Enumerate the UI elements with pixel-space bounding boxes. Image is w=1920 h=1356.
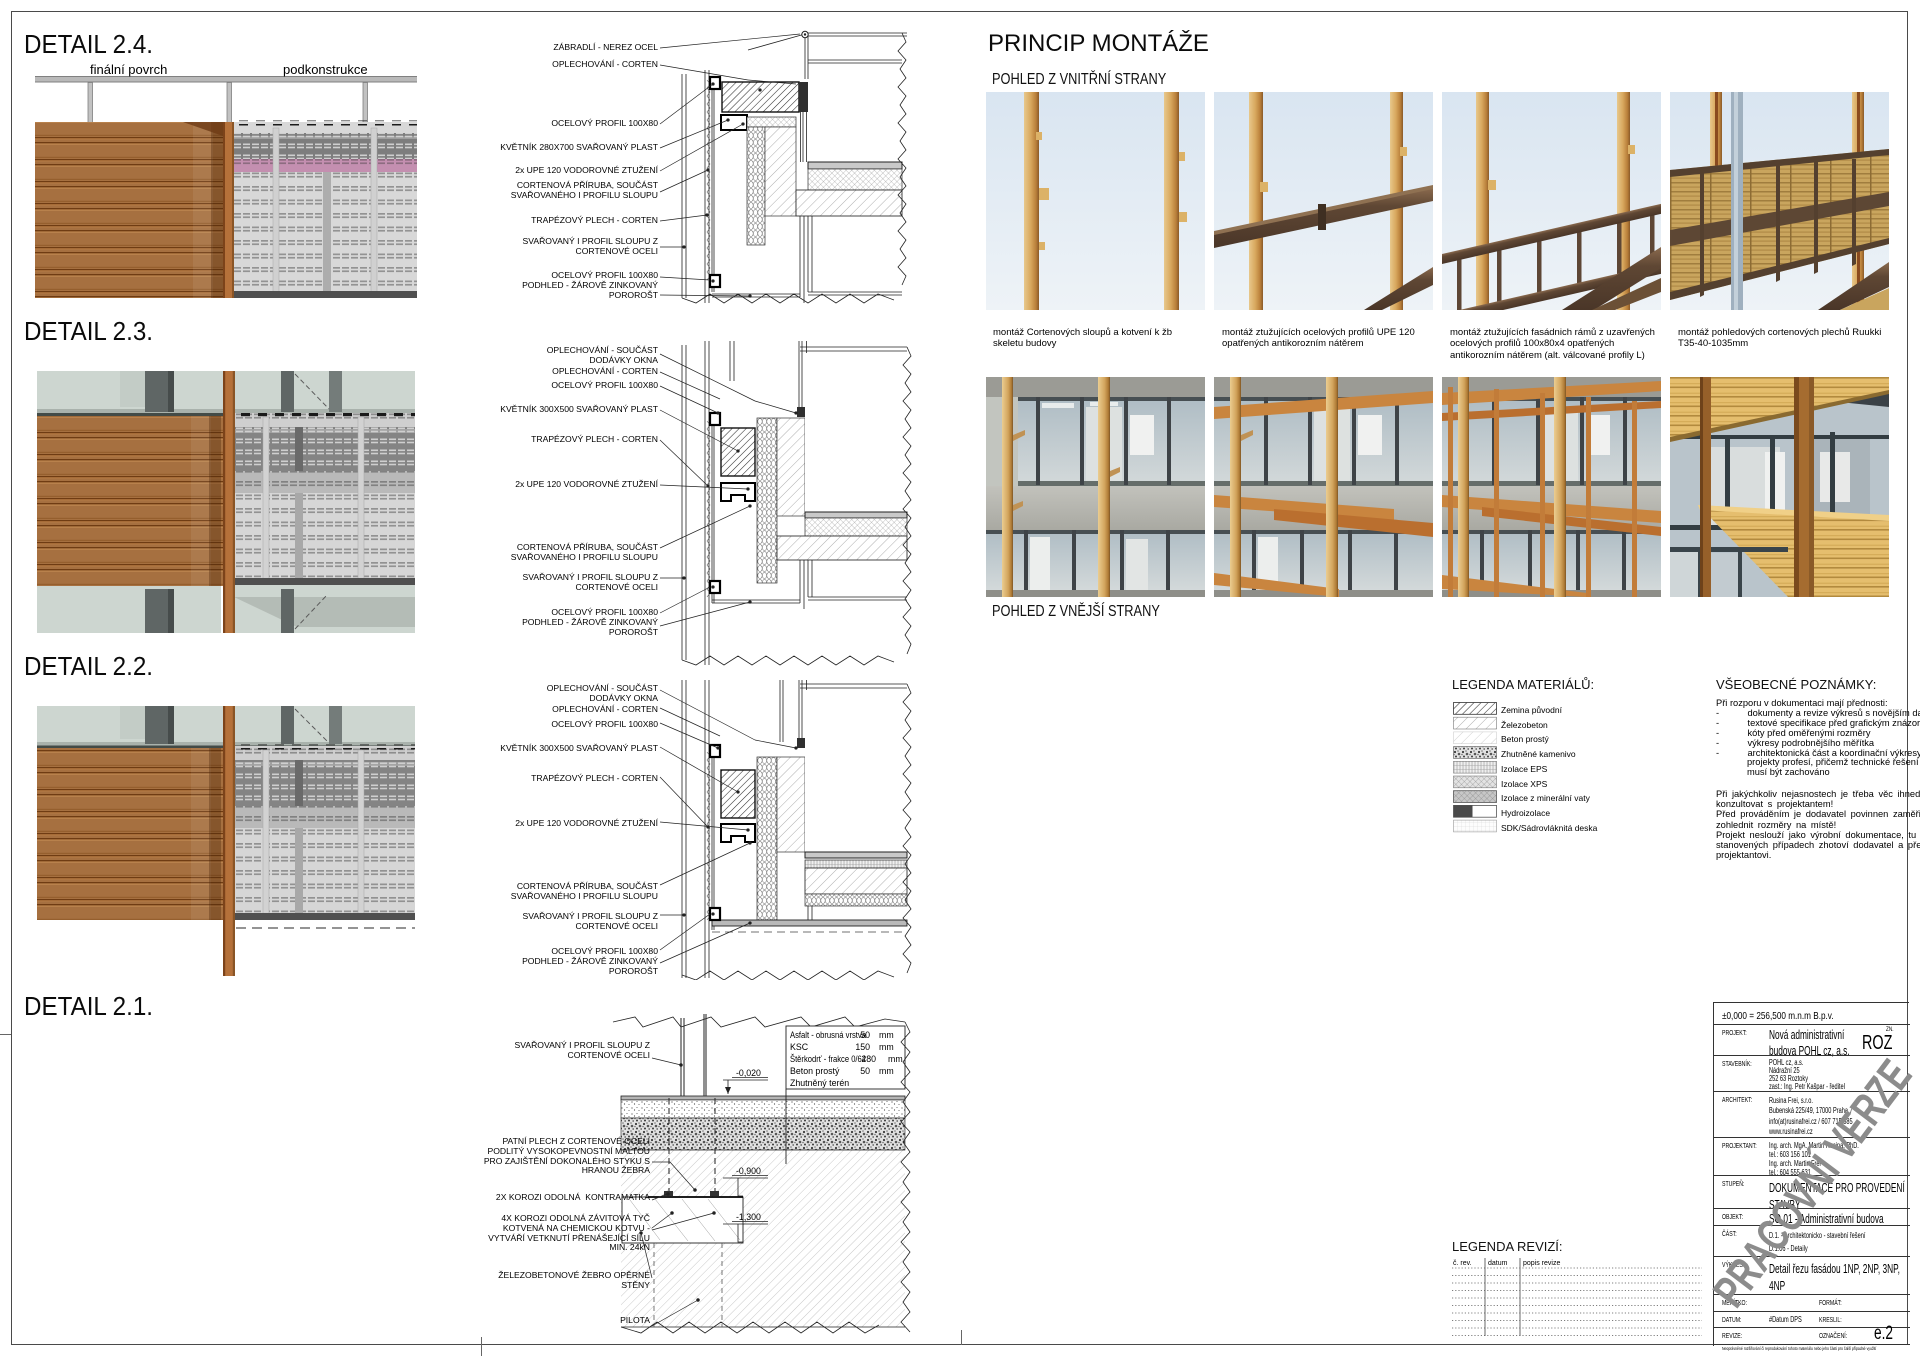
svg-text:50: 50 [860,1030,870,1040]
svg-text:mm: mm [879,1030,894,1040]
svg-text:mm: mm [888,1054,903,1064]
svg-text:Štěrkodrť - frakce 0/64: Štěrkodrť - frakce 0/64 [790,1054,866,1064]
svg-text:Beton prostý: Beton prostý [790,1066,840,1076]
svg-text:popis revize: popis revize [1523,1260,1560,1267]
svg-text:-1,300: -1,300 [736,1212,761,1222]
svg-text:mm: mm [879,1042,894,1052]
svg-text:č. rev.: č. rev. [1453,1260,1472,1267]
svg-text:Zhutněný terén: Zhutněný terén [790,1078,849,1088]
svg-text:50: 50 [860,1066,870,1076]
svg-text:mm: mm [879,1066,894,1076]
svg-text:datum: datum [1488,1260,1508,1267]
svg-text:Asfalt - obrusná vrstva: Asfalt - obrusná vrstva [790,1030,866,1040]
svg-text:280: 280 [861,1054,876,1064]
svg-text:KSC: KSC [790,1042,809,1052]
svg-text:-0,900: -0,900 [736,1166,761,1176]
svg-text:150: 150 [855,1042,870,1052]
svg-text:-0,020: -0,020 [736,1068,761,1078]
